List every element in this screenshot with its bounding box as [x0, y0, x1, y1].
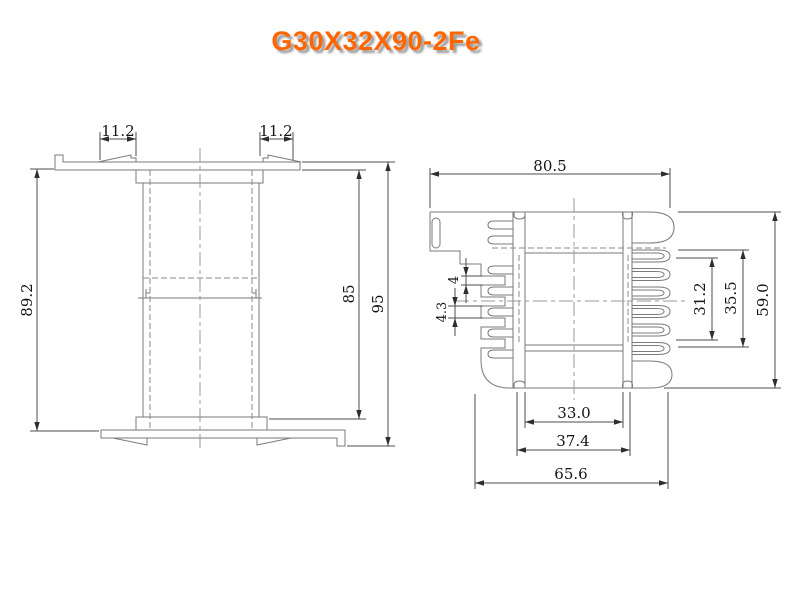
arrowhead: [34, 422, 39, 431]
arrowhead: [740, 338, 745, 347]
flange-rails: [513, 212, 632, 388]
arrowhead: [385, 162, 390, 171]
arrowhead: [463, 267, 468, 276]
dim-value: 11.2: [101, 122, 134, 140]
dim-value: 95: [369, 294, 387, 313]
left-pin: [488, 221, 513, 229]
top-edge-and-cap: [430, 212, 674, 243]
front-view: 11.2 11.2 89.2 85: [18, 122, 395, 452]
arrowhead: [621, 447, 630, 452]
dim-side-pin-width: 4.3: [435, 288, 483, 336]
side-view: 80.5 4 4.3 31.2: [430, 157, 781, 489]
front-view-hidden-lines: [143, 170, 259, 430]
dim-value: 85: [340, 284, 358, 303]
dim-front-inner-height: 85: [269, 170, 366, 419]
top-gusset-right: [263, 155, 301, 162]
arrowhead: [772, 379, 777, 388]
arrowhead: [475, 480, 484, 485]
left-pin: [488, 236, 513, 244]
arrowhead: [659, 480, 668, 485]
mounting-slot: [432, 218, 440, 248]
dim-side-pin-gap: 4: [447, 258, 483, 303]
arrowhead: [34, 169, 39, 178]
dim-value: 59.0: [754, 283, 772, 316]
dim-front-tab-left: 11.2: [100, 122, 136, 160]
left-pin: [488, 308, 513, 316]
bore-hidden-lines: [143, 170, 259, 430]
right-pin: [632, 287, 670, 299]
right-pin: [632, 250, 670, 262]
arrowhead: [709, 258, 714, 267]
dim-side-core-width: 33.0: [525, 392, 623, 428]
technical-drawing: 11.2 11.2 89.2 85: [0, 0, 800, 600]
arrowhead: [614, 419, 623, 424]
dim-value: 33.0: [557, 404, 590, 422]
right-pin: [632, 306, 670, 318]
arrowhead: [356, 170, 361, 179]
dim-value: 35.5: [722, 281, 740, 314]
top-gusset-left: [98, 155, 136, 162]
dim-value: 4.3: [435, 302, 450, 323]
dim-value: 37.4: [556, 432, 589, 450]
bottom-flange: [101, 430, 345, 446]
arrowhead: [772, 212, 777, 221]
dim-side-overall-width: 80.5: [430, 157, 670, 208]
dim-front-tab-right: 11.2: [259, 122, 293, 160]
bottom-boss: [136, 417, 267, 430]
dim-value: 31.2: [691, 282, 709, 315]
dim-value: 89.2: [18, 283, 36, 316]
arrowhead: [661, 171, 670, 176]
arrowhead: [709, 331, 714, 340]
arrowhead: [517, 447, 526, 452]
dim-value: 65.6: [554, 465, 587, 483]
drawing-canvas: G30X32X90-2Fe: [0, 0, 800, 600]
arrowhead: [356, 410, 361, 419]
right-pin: [632, 324, 670, 336]
arrowhead: [430, 171, 439, 176]
dim-lines: [461, 258, 483, 303]
arrowhead: [452, 318, 457, 327]
wire-slot: [623, 381, 633, 388]
left-pin: [488, 287, 513, 295]
dim-value: 80.5: [533, 157, 566, 175]
bottom-gusset-left: [113, 438, 147, 445]
dim-value: 4: [447, 276, 462, 284]
dim-side-window-height: 31.2: [676, 258, 718, 340]
wire-slot: [514, 212, 525, 219]
dim-front-flange-span: 89.2: [18, 169, 99, 431]
left-pin: [488, 266, 513, 274]
arrowhead: [385, 437, 390, 446]
wire-slot: [623, 212, 633, 219]
dim-lines: [30, 169, 99, 431]
top-flange: [55, 155, 300, 170]
arrowhead: [740, 250, 745, 259]
left-pin: [488, 329, 513, 337]
arrowhead: [525, 419, 534, 424]
left-pin: [488, 350, 513, 358]
bottom-gusset-right: [257, 438, 291, 445]
side-view-geometry: [430, 212, 674, 388]
arrowhead: [463, 285, 468, 294]
wire-slot: [514, 381, 525, 388]
dim-value: 11.2: [259, 122, 292, 140]
right-pin: [632, 343, 670, 355]
right-pin: [632, 269, 670, 281]
